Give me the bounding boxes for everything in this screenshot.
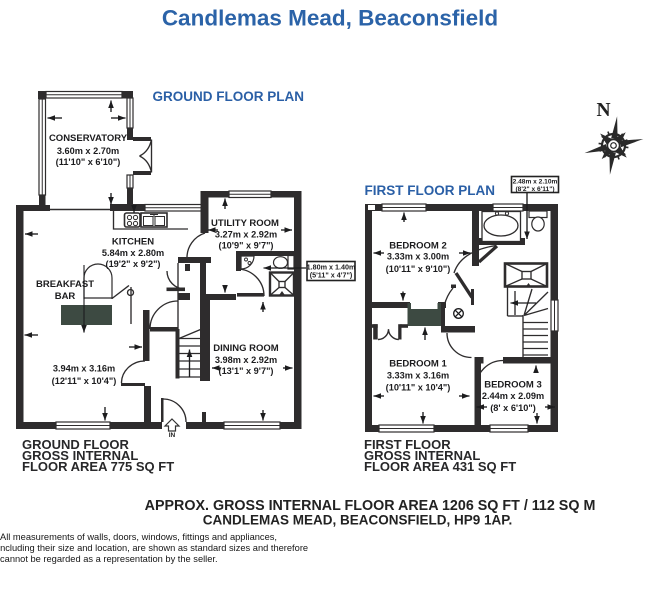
svg-text:3.98m x 2.92m: 3.98m x 2.92m — [215, 355, 277, 365]
svg-text:BAR: BAR — [55, 291, 76, 302]
svg-text:(13'1" x 9'7"): (13'1" x 9'7") — [219, 366, 274, 376]
svg-text:N: N — [597, 100, 611, 121]
svg-text:DINING ROOM: DINING ROOM — [213, 343, 279, 354]
svg-text:2.48m x 2.10m: 2.48m x 2.10m — [513, 179, 558, 186]
svg-text:2.44m x 2.09m: 2.44m x 2.09m — [482, 391, 544, 401]
svg-text:3.33m x 3.16m: 3.33m x 3.16m — [387, 371, 449, 381]
svg-text:FLOOR AREA 775 SQ FT: FLOOR AREA 775 SQ FT — [22, 459, 174, 474]
svg-text:FIRST FLOOR PLAN: FIRST FLOOR PLAN — [365, 183, 496, 198]
svg-text:3.27m x 2.92m: 3.27m x 2.92m — [215, 230, 277, 240]
svg-text:KITCHEN: KITCHEN — [112, 237, 154, 248]
svg-text:UTILITY ROOM: UTILITY ROOM — [211, 218, 279, 229]
svg-text:IN: IN — [169, 432, 176, 439]
svg-text:(8' x 6'10"): (8' x 6'10") — [490, 403, 536, 413]
svg-text:BEDROOM 1: BEDROOM 1 — [389, 359, 447, 370]
svg-text:(10'11" x 9'10"): (10'11" x 9'10") — [386, 264, 451, 274]
svg-text:(5'11" x 4'7"): (5'11" x 4'7") — [310, 271, 353, 280]
svg-text:(19'2" x 9'2"): (19'2" x 9'2") — [106, 259, 161, 269]
svg-text:CONSERVATORY: CONSERVATORY — [49, 133, 128, 144]
svg-text:All measurements of walls, doo: All measurements of walls, doors, window… — [0, 532, 277, 542]
svg-text:3.33m x 3.00m: 3.33m x 3.00m — [387, 252, 449, 262]
svg-text:CANDLEMAS MEAD, BEACONSFIELD,: CANDLEMAS MEAD, BEACONSFIELD, HP9 1AP. — [203, 513, 513, 528]
svg-text:3.60m x 2.70m: 3.60m x 2.70m — [57, 146, 119, 156]
svg-text:(10'9" x 9'7"): (10'9" x 9'7") — [219, 241, 274, 251]
svg-text:FLOOR AREA 431 SQ FT: FLOOR AREA 431 SQ FT — [364, 459, 516, 474]
svg-text:5.84m x 2.80m: 5.84m x 2.80m — [102, 248, 164, 258]
svg-text:Candlemas Mead, Beaconsfield: Candlemas Mead, Beaconsfield — [162, 6, 498, 31]
svg-text:(10'11" x 10'4"): (10'11" x 10'4") — [386, 383, 451, 393]
svg-text:including their size and locat: including their size and location, are s… — [0, 543, 308, 553]
svg-text:BEDROOM 3: BEDROOM 3 — [484, 380, 542, 391]
svg-text:cannot be regarded as a repres: cannot be regarded as a representation b… — [0, 554, 218, 564]
svg-text:(8'2" x 6'11"): (8'2" x 6'11") — [515, 186, 554, 193]
svg-text:(12'11" x 10'4"): (12'11" x 10'4") — [52, 376, 117, 386]
svg-text:GROUND FLOOR PLAN: GROUND FLOOR PLAN — [153, 89, 305, 104]
svg-text:3.94m x 3.16m: 3.94m x 3.16m — [53, 364, 115, 374]
svg-text:(11'10" x 6'10"): (11'10" x 6'10") — [56, 157, 121, 167]
svg-text:BEDROOM 2: BEDROOM 2 — [389, 241, 447, 252]
svg-text:BREAKFAST: BREAKFAST — [36, 279, 94, 290]
